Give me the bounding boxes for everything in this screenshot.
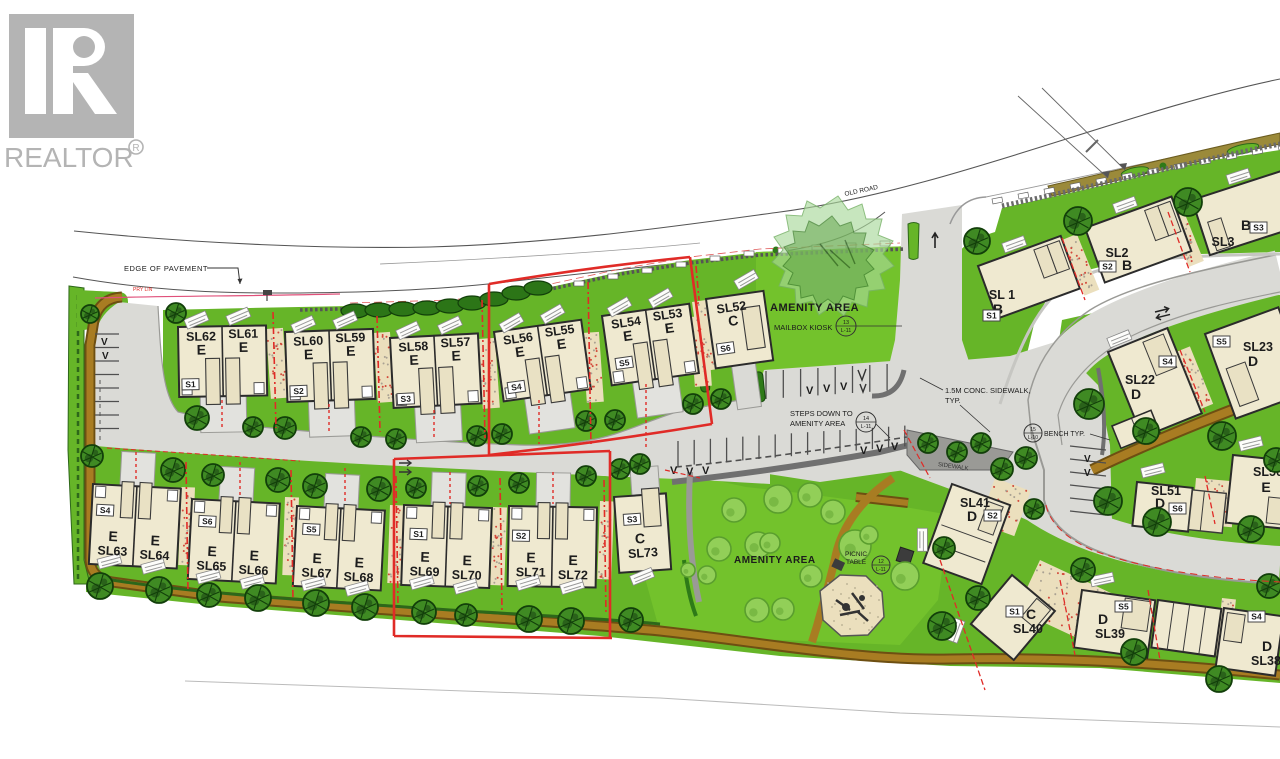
svg-text:E: E <box>150 532 160 548</box>
svg-text:PRY LIN: PRY LIN <box>133 287 153 293</box>
svg-text:V: V <box>876 443 884 455</box>
svg-text:EDGE OF PAVEMENT: EDGE OF PAVEMENT <box>124 264 208 273</box>
svg-text:S4: S4 <box>511 381 523 392</box>
svg-text:SL40: SL40 <box>1013 622 1043 636</box>
svg-text:TABLE: TABLE <box>846 559 867 566</box>
svg-text:V: V <box>702 465 710 477</box>
svg-text:V: V <box>823 383 831 395</box>
svg-text:L-10: L-10 <box>1028 435 1038 441</box>
svg-text:L-11: L-11 <box>861 424 872 430</box>
svg-text:SL68: SL68 <box>343 570 374 586</box>
svg-text:SL70: SL70 <box>452 568 482 583</box>
svg-text:SL65: SL65 <box>196 558 227 574</box>
svg-text:PICNIC: PICNIC <box>845 551 867 558</box>
svg-text:E: E <box>462 552 472 568</box>
svg-text:S2: S2 <box>293 386 304 396</box>
svg-text:E: E <box>108 528 118 544</box>
svg-text:V: V <box>102 351 109 362</box>
svg-text:V: V <box>806 385 814 397</box>
svg-text:V: V <box>670 465 678 477</box>
svg-text:SL73: SL73 <box>628 545 659 561</box>
svg-text:E: E <box>207 543 217 559</box>
svg-text:V: V <box>840 381 848 393</box>
svg-text:SL 1: SL 1 <box>989 288 1015 302</box>
svg-text:L-11: L-11 <box>876 567 886 573</box>
svg-text:SL66: SL66 <box>238 563 269 579</box>
svg-text:E: E <box>526 549 536 565</box>
svg-text:S5: S5 <box>306 524 317 535</box>
svg-text:REALTOR: REALTOR <box>4 142 134 173</box>
svg-text:S5: S5 <box>618 357 630 368</box>
svg-text:S5: S5 <box>1118 602 1129 612</box>
svg-text:SL38: SL38 <box>1251 654 1280 668</box>
svg-text:TYP.: TYP. <box>945 396 961 405</box>
svg-text:STEPS DOWN TO: STEPS DOWN TO <box>790 409 853 418</box>
svg-text:E: E <box>304 346 314 362</box>
svg-text:S3: S3 <box>627 514 638 525</box>
svg-text:SL72: SL72 <box>558 568 588 583</box>
svg-text:S2: S2 <box>987 511 998 521</box>
svg-text:AMENITY AREA: AMENITY AREA <box>770 302 859 314</box>
svg-text:S5: S5 <box>1216 337 1227 347</box>
svg-text:SL69: SL69 <box>409 564 439 579</box>
svg-text:E: E <box>346 343 356 359</box>
svg-text:B: B <box>1122 257 1132 273</box>
svg-text:C: C <box>634 530 645 547</box>
svg-text:C: C <box>1026 606 1036 622</box>
svg-text:S1: S1 <box>413 529 424 539</box>
svg-text:AMENITY AREA: AMENITY AREA <box>790 419 845 428</box>
svg-text:SL63: SL63 <box>97 543 128 559</box>
svg-text:MAILBOX KIOSK: MAILBOX KIOSK <box>774 323 832 332</box>
svg-text:E: E <box>312 550 322 566</box>
svg-text:1.5M CONC. SIDEWALK,: 1.5M CONC. SIDEWALK, <box>945 386 1031 395</box>
svg-text:S3: S3 <box>1253 223 1264 233</box>
svg-text:SL39: SL39 <box>1095 627 1125 641</box>
svg-text:14: 14 <box>863 416 869 422</box>
svg-text:V: V <box>1084 468 1091 479</box>
svg-text:13: 13 <box>843 320 849 326</box>
svg-text:E: E <box>451 347 461 363</box>
svg-text:S6: S6 <box>720 343 732 354</box>
svg-text:S6: S6 <box>202 516 213 527</box>
svg-text:SL23: SL23 <box>1243 340 1273 354</box>
svg-text:E: E <box>249 547 259 563</box>
svg-text:R: R <box>132 143 139 154</box>
svg-text:E: E <box>420 549 430 565</box>
svg-text:E: E <box>239 339 249 355</box>
svg-text:15: 15 <box>1030 427 1036 433</box>
svg-text:SL64: SL64 <box>139 548 170 564</box>
svg-text:S1: S1 <box>185 379 196 389</box>
svg-text:SL67: SL67 <box>301 565 332 581</box>
svg-text:12: 12 <box>878 559 884 565</box>
svg-text:V: V <box>1084 454 1091 465</box>
svg-text:S4: S4 <box>100 505 111 516</box>
svg-text:V: V <box>891 441 899 453</box>
svg-text:V: V <box>860 445 868 457</box>
svg-text:D: D <box>1131 386 1141 402</box>
svg-text:AMENITY AREA: AMENITY AREA <box>734 555 816 566</box>
svg-text:D: D <box>1262 638 1272 654</box>
svg-text:D: D <box>1098 611 1108 627</box>
svg-text:E: E <box>354 554 364 570</box>
svg-text:SL22: SL22 <box>1125 373 1155 387</box>
svg-text:D: D <box>1248 353 1258 369</box>
svg-text:E: E <box>196 342 206 358</box>
svg-text:S1: S1 <box>1009 607 1020 617</box>
svg-text:S6: S6 <box>1172 504 1183 514</box>
svg-text:SL3: SL3 <box>1212 235 1235 249</box>
svg-text:S3: S3 <box>400 393 411 404</box>
svg-text:S4: S4 <box>1251 612 1262 622</box>
svg-text:S1: S1 <box>986 311 997 321</box>
svg-text:S2: S2 <box>1102 262 1113 272</box>
svg-text:D: D <box>967 508 977 524</box>
svg-text:BENCH TYP.: BENCH TYP. <box>1044 431 1085 438</box>
svg-text:E: E <box>568 552 578 568</box>
svg-text:L-11: L-11 <box>841 328 852 334</box>
svg-text:S2: S2 <box>516 531 527 541</box>
svg-text:E: E <box>1261 479 1270 495</box>
svg-text:SL71: SL71 <box>516 565 546 580</box>
svg-text:E: E <box>409 352 419 368</box>
svg-text:S4: S4 <box>1162 357 1173 367</box>
svg-text:V: V <box>101 337 108 348</box>
